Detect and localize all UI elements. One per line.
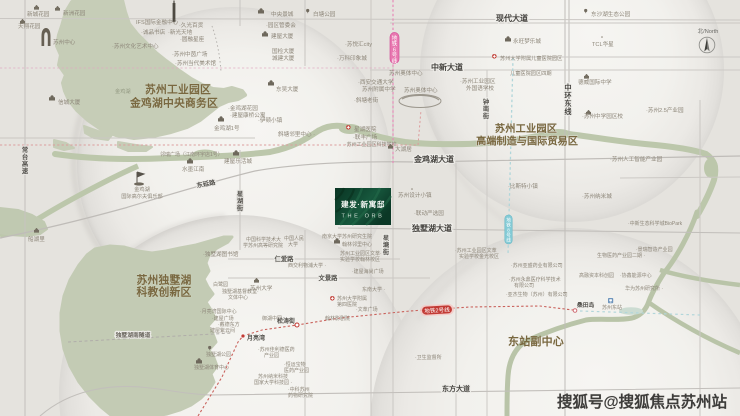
svg-text:医药产业园: 医药产业园 bbox=[284, 367, 309, 374]
svg-text:·景瑞智造产业园: ·景瑞智造产业园 bbox=[636, 246, 673, 253]
svg-text:中国人民: 中国人民 bbox=[284, 235, 304, 242]
svg-text:东吴大厦: 东吴大厦 bbox=[276, 85, 299, 93]
svg-text:白鹭园: 白鹭园 bbox=[213, 281, 228, 288]
svg-text:大湖居: 大湖居 bbox=[395, 145, 412, 153]
svg-text:·诚品书店: ·诚品书店 bbox=[141, 28, 166, 36]
svg-text:仁爱路: 仁爱路 bbox=[275, 254, 295, 263]
svg-text:南京大学苏州研究生院: 南京大学苏州研究生院 bbox=[322, 233, 372, 240]
svg-text:·苏州工业园区: ·苏州工业园区 bbox=[460, 77, 496, 85]
svg-text:金鸡湖1号: 金鸡湖1号 bbox=[214, 124, 240, 132]
svg-text:·亚杰生物（苏州）有限公司: ·亚杰生物（苏州）有限公司 bbox=[506, 291, 568, 298]
svg-text:金鸡湖中央商务区: 金鸡湖中央商务区 bbox=[129, 96, 218, 110]
svg-text:·比斯特小镇: ·比斯特小镇 bbox=[508, 182, 538, 190]
svg-text:药物研究院: 药物研究院 bbox=[288, 392, 313, 399]
svg-text:·苏州2.5产业园: ·苏州2.5产业园 bbox=[646, 106, 684, 114]
svg-text:星塘街: 星塘街 bbox=[382, 233, 390, 256]
svg-text:白塘公园: 白塘公园 bbox=[313, 10, 336, 18]
svg-text:·戴德东方: ·戴德东方 bbox=[218, 321, 240, 328]
svg-text:苏州工业园区: 苏州工业园区 bbox=[145, 82, 211, 96]
svg-text:东方大道: 东方大道 bbox=[442, 384, 470, 393]
svg-text:建屋大厦: 建屋大厦 bbox=[271, 32, 294, 40]
svg-text:苏州附属中学: 苏州附属中学 bbox=[362, 85, 396, 93]
svg-text:·苏州人工智能产业园: ·苏州人工智能产业园 bbox=[610, 155, 663, 163]
svg-text:·久光百货: ·久光百货 bbox=[179, 21, 204, 29]
svg-text:儿童医院园区四期: 儿童医院园区四期 bbox=[510, 69, 552, 77]
svg-text:·文萃广场: ·文萃广场 bbox=[356, 306, 378, 313]
svg-text:学苏州高等研究院: 学苏州高等研究院 bbox=[243, 242, 283, 249]
svg-text:东站副中心: 东站副中心 bbox=[508, 334, 564, 348]
svg-text:独墅湖体育中心: 独墅湖体育中心 bbox=[194, 364, 229, 371]
svg-text:·建屋海尚广场: ·建屋海尚广场 bbox=[352, 268, 384, 275]
svg-text:金鸡湖: 金鸡湖 bbox=[115, 87, 131, 95]
svg-text:·恒运宝物: ·恒运宝物 bbox=[284, 361, 306, 368]
svg-text:·万科印象城: ·万科印象城 bbox=[337, 54, 367, 62]
svg-text:·圆融星座: ·圆融星座 bbox=[180, 35, 205, 43]
svg-text:·苏州文化艺术中心: ·苏州文化艺术中心 bbox=[112, 42, 159, 50]
svg-text:·苏州中茵广场: ·苏州中茵广场 bbox=[172, 50, 208, 58]
svg-text:苏州奥体中心: 苏州奥体中心 bbox=[389, 69, 423, 77]
svg-text:苏州大学附属: 苏州大学附属 bbox=[337, 295, 367, 302]
svg-text:月亮湾: 月亮湾 bbox=[246, 334, 265, 342]
svg-text:信城大厦: 信城大厦 bbox=[58, 98, 81, 106]
svg-text:中央景城: 中央景城 bbox=[271, 10, 294, 18]
svg-text:·中科苏州: ·中科苏州 bbox=[288, 386, 310, 393]
svg-text:·月亮湾国际中心: ·月亮湾国际中心 bbox=[200, 308, 237, 315]
svg-text:外国语学校: 外国语学校 bbox=[466, 84, 494, 92]
svg-text:第四医院: 第四医院 bbox=[337, 301, 357, 308]
svg-text:钟南街: 钟南街 bbox=[482, 97, 490, 120]
svg-text:THE ORB: THE ORB bbox=[341, 214, 384, 220]
svg-text:松涛街: 松涛街 bbox=[277, 317, 295, 325]
svg-text:·建屋广场: ·建屋广场 bbox=[212, 315, 234, 322]
svg-text:·苏悦汇city: ·苏悦汇city bbox=[345, 40, 372, 48]
svg-text:桑田岛: 桑田岛 bbox=[576, 301, 595, 309]
svg-text:·园区管委会: ·园区管委会 bbox=[266, 21, 296, 29]
svg-text:国际高尔夫俱乐部: 国际高尔夫俱乐部 bbox=[121, 192, 163, 200]
svg-text:产业园: 产业园 bbox=[264, 352, 279, 359]
svg-text:东沙湖生态公园: 东沙湖生态公园 bbox=[591, 10, 631, 18]
svg-text:·联动严选园: ·联动严选园 bbox=[414, 209, 444, 217]
svg-text:生物医药产业园二期 ·: 生物医药产业园二期 · bbox=[597, 252, 645, 259]
svg-text:大学: 大学 bbox=[288, 241, 298, 248]
svg-text:·苏州纳米城: ·苏州纳米城 bbox=[582, 192, 612, 200]
svg-text:苏州工业园区文萃·: 苏州工业园区文萃· bbox=[340, 250, 382, 257]
svg-text:星湖医院: 星湖医院 bbox=[354, 125, 377, 133]
svg-text:新洲花园: 新洲花园 bbox=[63, 9, 86, 17]
svg-text:建屋乐活城: 建屋乐活城 bbox=[224, 157, 252, 165]
svg-text:苏州独墅湖: 苏州独墅湖 bbox=[137, 273, 192, 287]
svg-text:独墅湖南隧道: 独墅湖南隧道 bbox=[115, 331, 151, 339]
svg-text:建发·新寓邸: 建发·新寓邸 bbox=[340, 199, 385, 209]
svg-text:·独墅湖图书馆: ·独墅湖图书馆 bbox=[203, 250, 239, 258]
svg-text:苏州工业园区: 苏州工业园区 bbox=[495, 122, 557, 135]
svg-text:斜塘邻里中心 ·: 斜塘邻里中心 · bbox=[278, 130, 315, 138]
svg-text:文景路: 文景路 bbox=[319, 273, 339, 282]
svg-text:·联丰广场: ·联丰广场 bbox=[353, 133, 378, 141]
svg-text:现代大道: 现代大道 bbox=[496, 13, 528, 23]
svg-text:国家大学科技园 ·: 国家大学科技园 · bbox=[254, 379, 292, 386]
svg-text:·斜塘老街: ·斜塘老街 bbox=[354, 96, 379, 104]
svg-text:IFS国际金融中心: IFS国际金融中心 bbox=[136, 18, 179, 26]
svg-text:·协鑫能源中心: ·协鑫能源中心 bbox=[620, 272, 652, 279]
svg-text:新城花园: 新城花园 bbox=[27, 10, 50, 18]
svg-text:苏州设计小镇: 苏州设计小镇 bbox=[398, 191, 432, 199]
svg-text:·西安交通大学: ·西安交通大学 bbox=[358, 78, 394, 86]
svg-text:德威国际中学: 德威国际中学 bbox=[578, 78, 612, 86]
svg-text:·苏州永鼎医疗科学技术: ·苏州永鼎医疗科学技术 bbox=[509, 276, 561, 283]
svg-text:文体中心: 文体中心 bbox=[228, 294, 248, 301]
svg-text:·卫生监督所: ·卫生监督所 bbox=[415, 354, 442, 361]
svg-text:·苏州佳利德医药: ·苏州佳利德医药 bbox=[258, 346, 295, 353]
svg-text:苏州中心: 苏州中心 bbox=[53, 38, 76, 46]
svg-text:翰林影剧院: 翰林影剧院 bbox=[325, 315, 350, 322]
svg-text:船湖里: 船湖里 bbox=[28, 235, 45, 243]
svg-text:金鸡湖大道: 金鸡湖大道 bbox=[413, 154, 454, 164]
svg-text:·新光天地: ·新光天地 bbox=[168, 28, 193, 36]
svg-text:北/North: 北/North bbox=[698, 27, 719, 35]
svg-text:常台高速: 常台高速 bbox=[22, 145, 29, 175]
svg-text:中国科学技术大: 中国科学技术大 bbox=[246, 236, 281, 243]
svg-text:TCL华星: TCL华星 bbox=[592, 40, 614, 48]
svg-text:建屋紫云间: 建屋紫云间 bbox=[210, 327, 235, 334]
svg-text:高端制造与国际贸易区: 高端制造与国际贸易区 bbox=[476, 135, 578, 148]
svg-text:实验学校金光校区: 实验学校金光校区 bbox=[459, 253, 499, 260]
svg-text:独墅湖基督教堂·: 独墅湖基督教堂· bbox=[222, 288, 259, 295]
svg-text:中新大道: 中新大道 bbox=[431, 62, 463, 72]
svg-text:有限公司: 有限公司 bbox=[514, 282, 534, 289]
svg-text:星湖街: 星湖街 bbox=[236, 189, 244, 212]
svg-text:·中新生态科学城BioPark: ·中新生态科学城BioPark bbox=[628, 220, 683, 227]
svg-text:·苏州工业园区文萃: ·苏州工业园区文萃 bbox=[455, 247, 497, 254]
svg-text:西交利物浦大学 ·: 西交利物浦大学 · bbox=[288, 262, 326, 269]
svg-text:·苏州中学园区校: ·苏州中学园区校 bbox=[582, 112, 623, 120]
svg-text:国检大厦: 国检大厦 bbox=[272, 47, 295, 55]
svg-text:苏州奥体中心: 苏州奥体中心 bbox=[404, 86, 438, 94]
svg-text:中环东线: 中环东线 bbox=[564, 83, 572, 116]
svg-text:苏州纳米科技: 苏州纳米科技 bbox=[258, 373, 288, 380]
svg-text:独墅湖大道: 独墅湖大道 bbox=[411, 223, 452, 233]
svg-text:邻瑞广场（江南环宇店1号）: 邻瑞广场（江南环宇店1号） bbox=[160, 151, 223, 158]
svg-text:翰林邻里中心: 翰林邻里中心 bbox=[342, 241, 372, 248]
svg-text:天翔花园: 天翔花园 bbox=[18, 22, 41, 30]
svg-text:东南大学 ·: 东南大学 · bbox=[362, 286, 385, 293]
svg-text:金鸡湖: 金鸡湖 bbox=[134, 185, 150, 193]
svg-text:独墅湖公园: 独墅湖公园 bbox=[206, 351, 231, 358]
svg-text:苏州东站: 苏州东站 bbox=[602, 304, 622, 311]
svg-text:永旺梦乐城: 永旺梦乐城 bbox=[513, 37, 541, 45]
svg-text:·伊顿小镇: ·伊顿小镇 bbox=[258, 116, 283, 124]
svg-text:城建大厦: 城建大厦 bbox=[272, 54, 295, 62]
svg-text:高融资本科创园: 高融资本科创园 bbox=[579, 272, 614, 279]
svg-text:科教创新区: 科教创新区 bbox=[137, 285, 192, 299]
svg-text:水墨江南: 水墨江南 bbox=[182, 165, 205, 173]
svg-text:华为苏州研究所 ·: 华为苏州研究所 · bbox=[625, 285, 663, 292]
svg-text:·苏州当代美术馆: ·苏州当代美术馆 bbox=[175, 59, 216, 67]
svg-text:·苏州亚盛药业有限公司: ·苏州亚盛药业有限公司 bbox=[511, 262, 563, 269]
svg-text:实验学校翰林校区: 实验学校翰林校区 bbox=[340, 256, 380, 263]
svg-text:苏州大学附属儿童医院园区: 苏州大学附属儿童医院园区 bbox=[500, 54, 562, 62]
svg-text:搜狐号@搜狐焦点苏州站: 搜狐号@搜狐焦点苏州站 bbox=[557, 392, 728, 411]
svg-text:·金鸡湖花园: ·金鸡湖花园 bbox=[228, 104, 258, 112]
